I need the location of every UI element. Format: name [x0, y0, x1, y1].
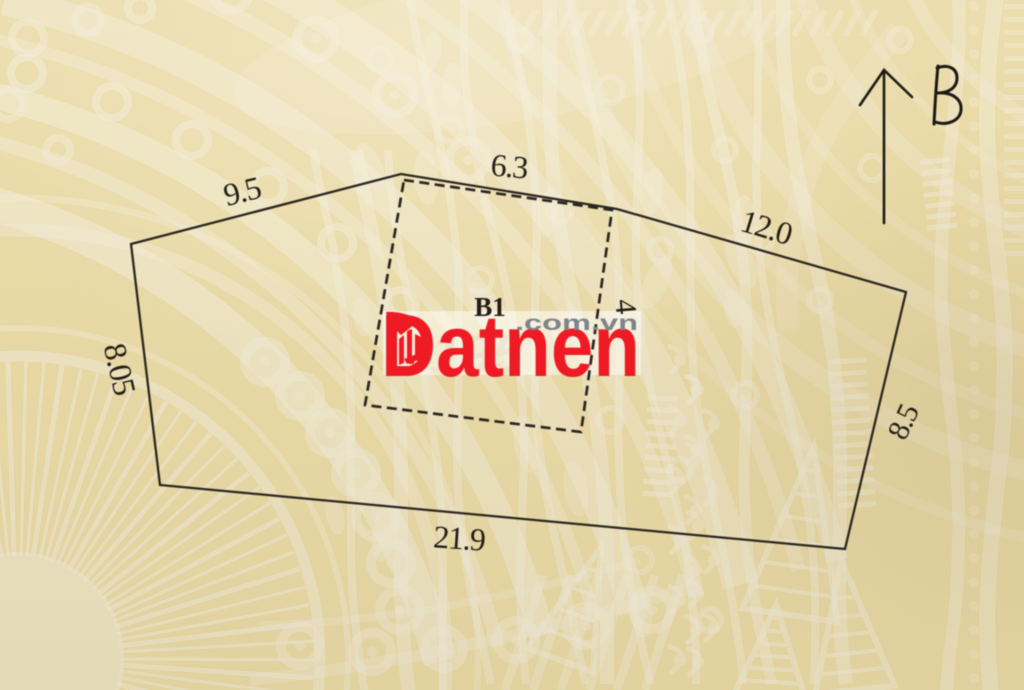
svg-text:.com.vn: .com.vn	[515, 312, 638, 335]
svg-text:8.5: 8.5	[881, 400, 925, 445]
svg-text:12.0: 12.0	[737, 202, 797, 251]
svg-text:8.05: 8.05	[97, 340, 144, 398]
svg-text:21.9: 21.9	[432, 518, 486, 557]
svg-text:9.5: 9.5	[220, 169, 264, 213]
svg-text:6.3: 6.3	[489, 146, 529, 185]
